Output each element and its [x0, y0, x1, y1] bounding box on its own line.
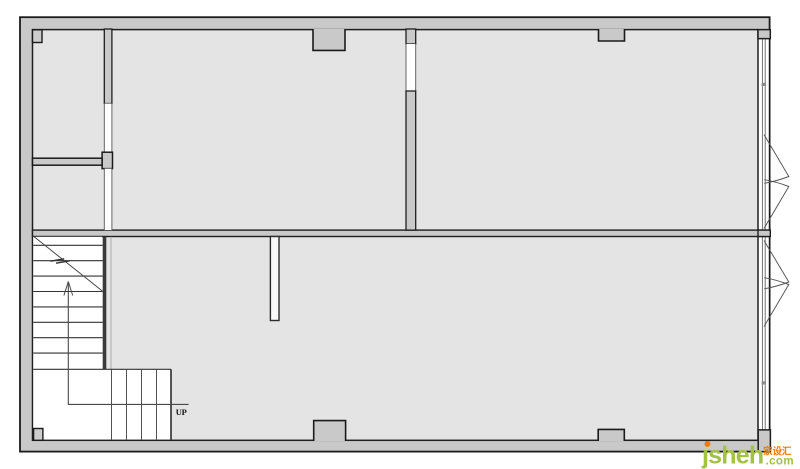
svg-text:ȷsheh: ȷsheh: [701, 442, 763, 469]
svg-text:UP: UP: [176, 407, 187, 417]
svg-text:.com: .com: [766, 456, 794, 468]
